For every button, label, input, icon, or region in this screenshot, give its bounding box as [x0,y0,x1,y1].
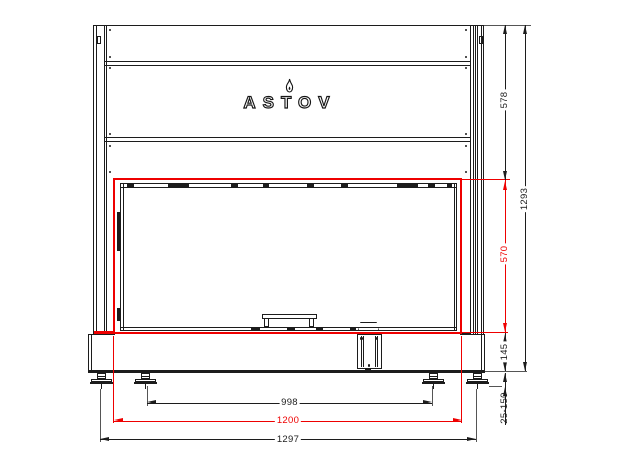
glass-edge-right [454,183,455,330]
dim-arrow [503,323,507,332]
floor-extension-line [489,386,502,387]
panel-seam [105,61,471,62]
dim-overall-height: 1293 [520,186,530,212]
dim-arrow [100,437,109,441]
rail-clip [251,327,260,330]
dim-opening-width: 1200 [275,416,301,426]
dim-arrow [114,418,123,422]
rail-clip [447,184,452,187]
dim-overall-width: 1297 [275,434,301,444]
dim-arrow [503,181,507,190]
dim-arrow [503,362,507,371]
rail-clip [287,327,295,330]
lever-inner-line [361,336,362,367]
door-hinge [117,212,122,251]
rail-clip [263,184,269,187]
dim-arrow [467,437,476,441]
rail-clip [168,184,189,187]
right-side-clip [479,36,484,44]
dim-arrow [503,171,507,180]
foot-stem [433,384,434,389]
panel-seam [105,65,471,66]
panel-seam [105,141,471,142]
door-hinge-lower [117,308,121,321]
rail-clip [397,184,418,187]
door-frame [120,183,458,332]
door-handle-leg-left [264,318,270,327]
dim-base-height: 145 [500,341,510,362]
foot-stem [101,384,102,389]
base-top-edge-left [88,334,115,335]
base-right-edge-outer [484,334,485,372]
lever-inner-line [363,336,364,367]
face-inner-line-left [106,25,107,334]
lever-screw-dot [376,337,378,339]
dim-arrow [503,373,507,382]
rail-clip [316,327,323,330]
left-side-wall-outer [93,25,94,334]
lever-inner-line [377,336,378,367]
dim-arrow [147,400,156,404]
extension-line [100,389,101,442]
dim-top-section-height: 578 [500,90,510,111]
dim-arrow [503,25,507,34]
foot-stem [145,384,146,389]
panel-seam [105,137,471,138]
dim-leg-adjust-range: 25-150 [500,390,510,425]
fireplace-technical-drawing: ASTOV [0,0,624,460]
brand-logo: ASTOV [243,93,336,113]
foot-bolt-line [141,376,150,377]
base-left-edge-outer [88,334,89,372]
lever-screw-dot [368,364,370,366]
rail-clip [350,327,356,330]
extension-line [476,389,477,442]
base-left-edge-inner [91,334,92,372]
dim-arrow [453,418,462,422]
base-right-edge-inner [481,334,482,372]
door-handle-leg-right [309,318,315,327]
red-extension-line [461,336,462,423]
door-top-rail-line [121,187,456,188]
left-side-wall-inner [96,25,97,334]
rail-clip [127,184,134,187]
rail-clip [428,184,435,187]
rail-clip [341,184,348,187]
foot-bolt-line [429,376,438,377]
red-extension-line [113,336,114,423]
rail-clip [231,184,238,187]
red-extension-bottom-right [460,332,508,333]
left-side-clip [97,36,102,44]
lever-tab [358,322,379,331]
foot-bolt-line [97,376,106,377]
dim-arrow [423,400,432,404]
dim-arrow [523,362,527,371]
rail-clip [307,184,314,187]
lever-screw-dot [360,337,362,339]
lever-inner-line [375,336,376,367]
flame-icon [283,78,296,96]
foot-bolt-line [473,376,482,377]
dim-feet-spacing: 998 [279,398,300,408]
glass-edge-left [123,183,124,330]
dim-arrow [523,25,527,34]
dim-opening-height: 570 [500,244,510,265]
